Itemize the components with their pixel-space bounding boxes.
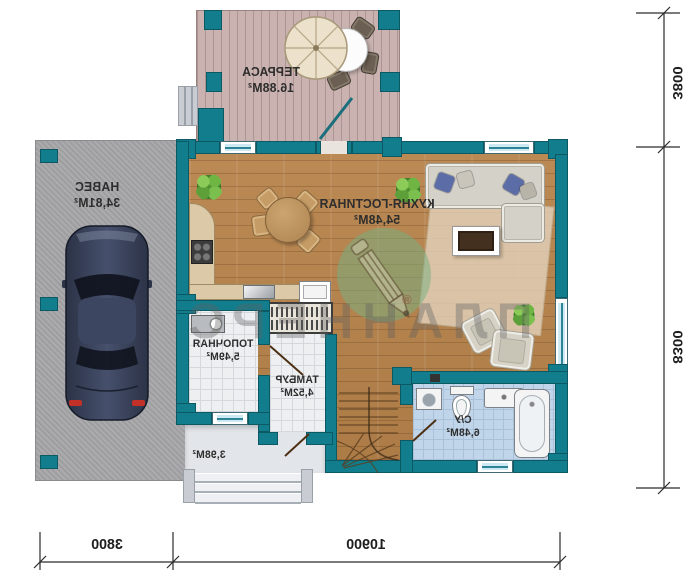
dimension-right-bottom: 8300 [667, 317, 686, 377]
staircase [337, 393, 398, 473]
bathroom-label: С/У 6,48М² [397, 414, 529, 440]
floor-plan: ПЛАННЕРС ® [0, 0, 700, 575]
entry-porch-label: 3,98М² [153, 449, 266, 462]
dimension-bottom-left: 3800 [79, 536, 136, 556]
boiler-label: ТОПОЧНАЯ 5,49М² [157, 338, 289, 364]
entry-door-leaf [285, 434, 309, 456]
plan-linework [0, 0, 700, 575]
dimension-lines [34, 7, 680, 570]
terrace-door-leaf [320, 98, 352, 139]
kitchen-living-label: КУХНЯ-ГОСТИНАЯ 54,48М² [302, 196, 452, 227]
vestibule-label: ТАМБУР 4,52М² [231, 374, 363, 400]
carport-label: НАВЕС 34,81М² [31, 179, 163, 210]
terrace-label: ТЕРРАСА 16.88М² [205, 64, 337, 95]
dimension-bottom-right: 10900 [333, 536, 400, 556]
dimension-right-top: 3800 [667, 53, 686, 113]
